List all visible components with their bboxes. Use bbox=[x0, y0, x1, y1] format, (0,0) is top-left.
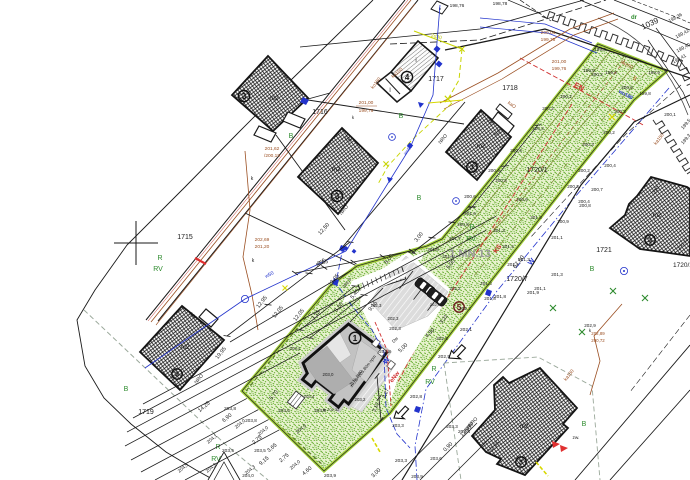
svg-text:200,6: 200,6 bbox=[516, 197, 528, 202]
svg-text:202,69: 202,69 bbox=[255, 237, 270, 243]
svg-text:201,8: 201,8 bbox=[484, 296, 496, 301]
svg-text:202,1: 202,1 bbox=[460, 327, 472, 333]
svg-text:202,5: 202,5 bbox=[438, 354, 450, 360]
svg-text:200,2: 200,2 bbox=[591, 72, 603, 77]
svg-text:RV: RV bbox=[466, 236, 476, 243]
svg-text:1715: 1715 bbox=[177, 234, 193, 241]
svg-text:3: 3 bbox=[648, 236, 652, 245]
svg-text:200,2: 200,2 bbox=[603, 130, 615, 135]
svg-text:203,1: 203,1 bbox=[290, 346, 302, 351]
svg-text:B: B bbox=[417, 195, 422, 202]
svg-text:m2: m2 bbox=[331, 166, 340, 173]
svg-text:3: 3 bbox=[242, 92, 247, 101]
svg-text:1719: 1719 bbox=[138, 409, 154, 416]
svg-text:1: 1 bbox=[353, 333, 358, 343]
svg-text:202,89: 202,89 bbox=[591, 331, 605, 336]
svg-text:203,9: 203,9 bbox=[411, 474, 423, 479]
svg-text:/200,19: /200,19 bbox=[264, 153, 280, 159]
svg-text:201,3: 201,3 bbox=[518, 257, 530, 262]
svg-text:201,3: 201,3 bbox=[493, 228, 505, 233]
svg-text:202,3: 202,3 bbox=[371, 303, 383, 308]
svg-text:203,5: 203,5 bbox=[254, 448, 266, 453]
svg-text:199,75: 199,75 bbox=[541, 37, 556, 43]
svg-text:200,1: 200,1 bbox=[664, 112, 676, 117]
svg-text:203,2: 203,2 bbox=[355, 397, 367, 402]
svg-text:199,9: 199,9 bbox=[648, 70, 660, 75]
svg-text:198,78: 198,78 bbox=[493, 1, 508, 7]
svg-text:203,4: 203,4 bbox=[458, 429, 470, 435]
svg-text:m2: m2 bbox=[476, 143, 485, 150]
svg-text:199,3: 199,3 bbox=[594, 47, 606, 52]
svg-text:203,3: 203,3 bbox=[395, 458, 407, 464]
svg-text:202,9: 202,9 bbox=[584, 323, 596, 328]
svg-text:199,9: 199,9 bbox=[605, 70, 617, 75]
svg-text:dr: dr bbox=[631, 15, 638, 21]
svg-text:zw.: zw. bbox=[573, 436, 580, 441]
svg-text:202,3: 202,3 bbox=[388, 316, 400, 321]
svg-text:m2: m2 bbox=[652, 212, 661, 219]
svg-text:201,1: 201,1 bbox=[534, 286, 546, 291]
svg-text:201,00: 201,00 bbox=[359, 100, 374, 106]
svg-text:201,4: 201,4 bbox=[502, 244, 514, 249]
svg-text:1718: 1718 bbox=[502, 85, 518, 92]
svg-text:198,76: 198,76 bbox=[450, 3, 465, 9]
svg-text:200,3: 200,3 bbox=[614, 109, 626, 114]
svg-text:200,7: 200,7 bbox=[591, 187, 603, 192]
svg-text:204,0: 204,0 bbox=[242, 473, 254, 478]
svg-text:203,6: 203,6 bbox=[278, 408, 290, 413]
svg-text:203,6: 203,6 bbox=[430, 456, 442, 461]
svg-text:1720/1: 1720/1 bbox=[526, 167, 548, 174]
svg-text:201,4: 201,4 bbox=[507, 262, 519, 267]
svg-text:201,1: 201,1 bbox=[551, 235, 563, 240]
svg-text:RV: RV bbox=[425, 379, 435, 386]
svg-text:200,8: 200,8 bbox=[579, 203, 591, 208]
svg-text:3: 3 bbox=[335, 192, 340, 201]
svg-text:202,2: 202,2 bbox=[459, 306, 471, 311]
svg-text:199,76: 199,76 bbox=[552, 66, 567, 72]
svg-text:201,6: 201,6 bbox=[464, 211, 476, 216]
svg-text:202,3: 202,3 bbox=[389, 326, 401, 331]
svg-text:1716: 1716 bbox=[312, 109, 328, 116]
svg-text:m2: m2 bbox=[180, 344, 189, 351]
svg-text:200,3: 200,3 bbox=[582, 142, 594, 147]
svg-text:203,9: 203,9 bbox=[324, 473, 336, 479]
svg-text:200,72: 200,72 bbox=[591, 338, 605, 343]
svg-text:200,8: 200,8 bbox=[457, 222, 469, 227]
svg-text:200,3: 200,3 bbox=[567, 184, 579, 189]
svg-text:m2: m2 bbox=[519, 423, 528, 430]
svg-text:3: 3 bbox=[519, 458, 523, 467]
svg-text:200,2: 200,2 bbox=[578, 168, 590, 173]
svg-text:201,0: 201,0 bbox=[530, 215, 542, 220]
svg-text:200,8: 200,8 bbox=[495, 178, 507, 183]
svg-text:203,8: 203,8 bbox=[245, 418, 257, 423]
svg-text:4: 4 bbox=[405, 73, 410, 82]
svg-text:R: R bbox=[431, 366, 436, 373]
svg-text:201,3: 201,3 bbox=[480, 281, 492, 286]
svg-text:200,0: 200,0 bbox=[621, 85, 633, 90]
svg-text:l: l bbox=[389, 88, 390, 94]
svg-text:202,8: 202,8 bbox=[379, 349, 391, 354]
svg-text:199,76: 199,76 bbox=[359, 108, 374, 114]
svg-text:203,3: 203,3 bbox=[446, 424, 458, 429]
svg-text:200,6: 200,6 bbox=[464, 194, 476, 199]
svg-text:203,4: 203,4 bbox=[304, 394, 316, 399]
svg-text:200,2: 200,2 bbox=[560, 94, 572, 99]
svg-text:200,4: 200,4 bbox=[488, 168, 500, 173]
svg-text:203,0: 203,0 bbox=[323, 372, 335, 377]
svg-text:203,3: 203,3 bbox=[392, 423, 404, 428]
svg-text:3: 3 bbox=[470, 163, 474, 172]
svg-text:1721: 1721 bbox=[596, 247, 612, 254]
svg-text:3: 3 bbox=[175, 370, 179, 379]
svg-text:B: B bbox=[582, 421, 587, 428]
svg-text:201,62: 201,62 bbox=[265, 146, 280, 152]
svg-text:202,5: 202,5 bbox=[436, 336, 448, 341]
svg-text:B: B bbox=[289, 133, 294, 140]
svg-text:200,2: 200,2 bbox=[542, 106, 554, 111]
svg-text:200,9: 200,9 bbox=[557, 219, 569, 224]
svg-text:m2: m2 bbox=[269, 95, 278, 102]
svg-text:B: B bbox=[590, 266, 595, 273]
svg-text:200,4: 200,4 bbox=[510, 148, 522, 153]
svg-text:200,3: 200,3 bbox=[532, 126, 544, 131]
svg-text:200,4: 200,4 bbox=[604, 163, 616, 168]
svg-text:203,8: 203,8 bbox=[314, 408, 326, 413]
svg-text:203,8: 203,8 bbox=[224, 406, 236, 412]
svg-text:B: B bbox=[399, 113, 404, 120]
svg-text:202,2: 202,2 bbox=[450, 286, 462, 291]
svg-text:1717: 1717 bbox=[428, 76, 444, 83]
svg-text:B: B bbox=[124, 386, 129, 393]
svg-text:201,3: 201,3 bbox=[551, 272, 563, 277]
svg-text:201,00: 201,00 bbox=[552, 59, 567, 65]
svg-text:203,5: 203,5 bbox=[222, 448, 234, 454]
svg-text:200,04: 200,04 bbox=[541, 30, 556, 36]
svg-text:1720/2: 1720/2 bbox=[673, 262, 690, 269]
svg-text:201,1: 201,1 bbox=[442, 254, 454, 259]
svg-text:201,20: 201,20 bbox=[255, 244, 270, 250]
svg-text:201,7: 201,7 bbox=[449, 236, 461, 241]
svg-text:199,8: 199,8 bbox=[639, 91, 651, 96]
svg-text:202,8: 202,8 bbox=[410, 394, 422, 400]
svg-text:202,90: 202,90 bbox=[430, 302, 443, 307]
svg-text:i: i bbox=[415, 58, 416, 64]
svg-text:R: R bbox=[157, 255, 162, 262]
svg-text:RV: RV bbox=[153, 266, 163, 273]
svg-text:201,8: 201,8 bbox=[494, 294, 506, 300]
